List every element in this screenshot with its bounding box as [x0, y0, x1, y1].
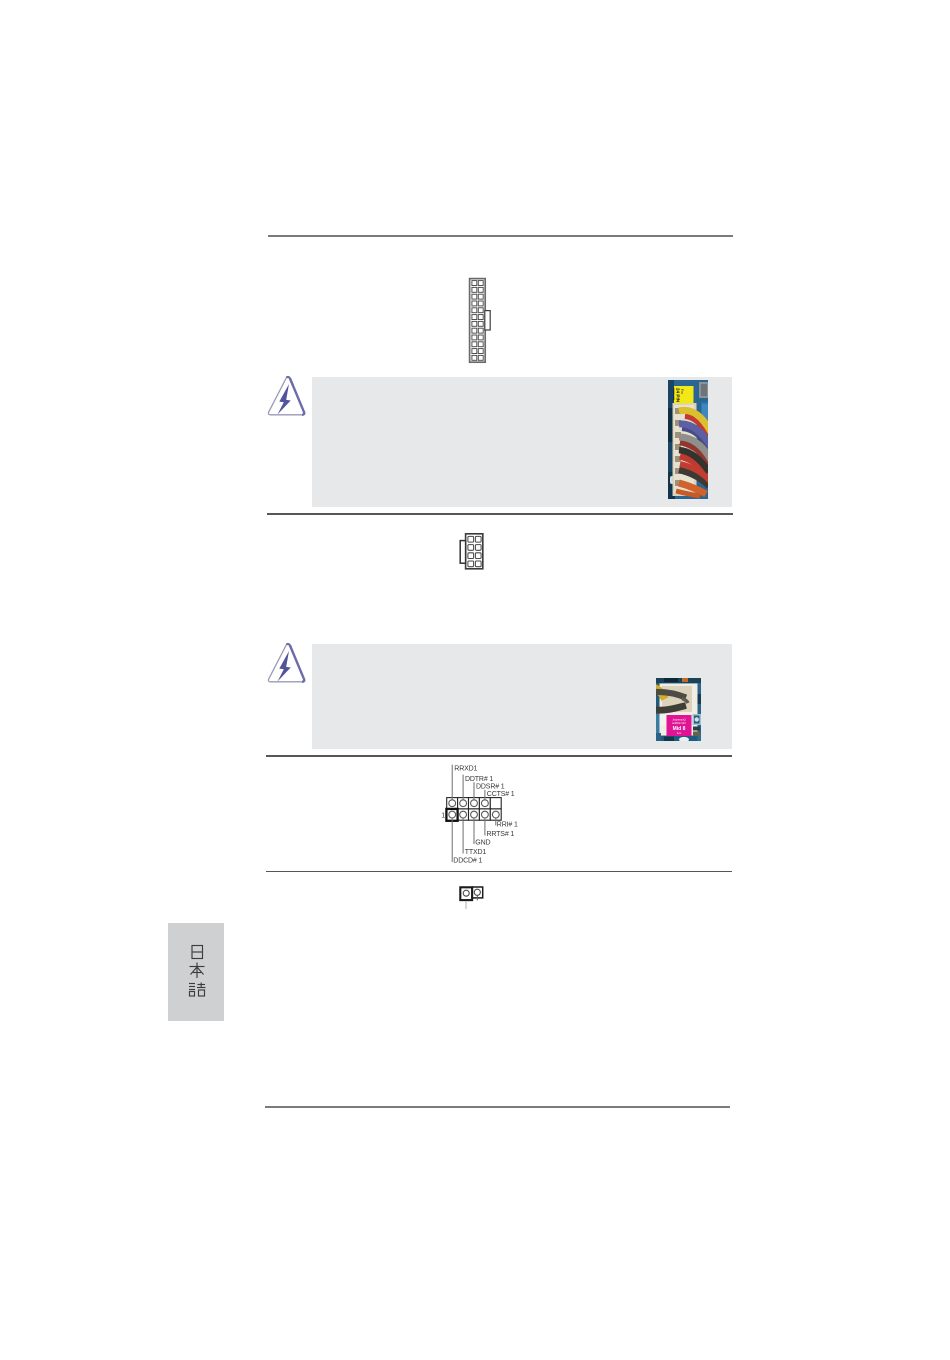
svg-text:1: 1: [441, 813, 445, 820]
svg-text:JoL: JoL: [677, 731, 682, 735]
svg-text:CCTS# 1: CCTS# 1: [487, 791, 515, 798]
svg-text:JoqoeuuoQ: JoqoeuuoQ: [672, 717, 685, 721]
svg-text:RRI# 1: RRI# 1: [497, 821, 518, 828]
svg-text:Connector: Connector: [672, 388, 676, 400]
svg-text:JeMOd X1V: JeMOd X1V: [672, 721, 686, 725]
svg-text:DDTR# 1: DDTR# 1: [465, 776, 493, 783]
svg-text:RRTS# 1: RRTS# 1: [487, 831, 515, 838]
svg-text:GND: GND: [475, 839, 490, 846]
svg-text:DDSR# 1: DDSR# 1: [476, 783, 505, 790]
svg-text:TTXD1: TTXD1: [465, 849, 487, 856]
svg-text:DDCD# 1: DDCD# 1: [453, 857, 482, 864]
svg-text:RRXD1: RRXD1: [454, 766, 477, 773]
svg-text:24 PIN: 24 PIN: [676, 388, 681, 403]
